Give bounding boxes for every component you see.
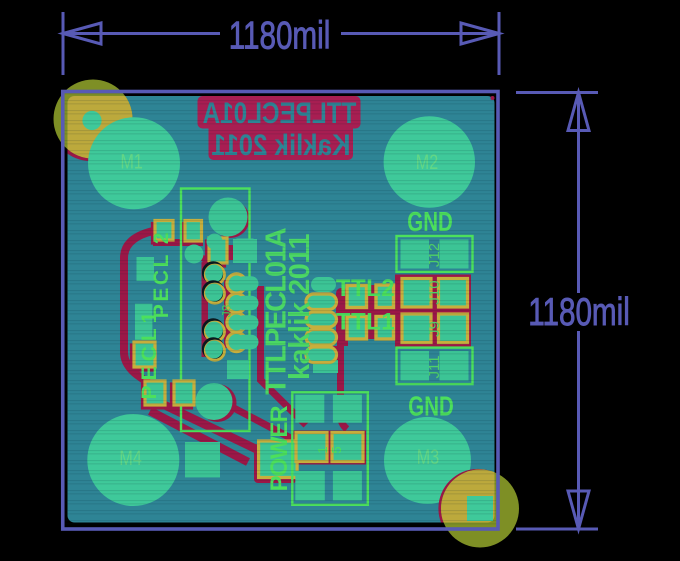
svg-text:1180mil: 1180mil (229, 15, 331, 58)
svg-text:1180mil: 1180mil (528, 291, 630, 334)
